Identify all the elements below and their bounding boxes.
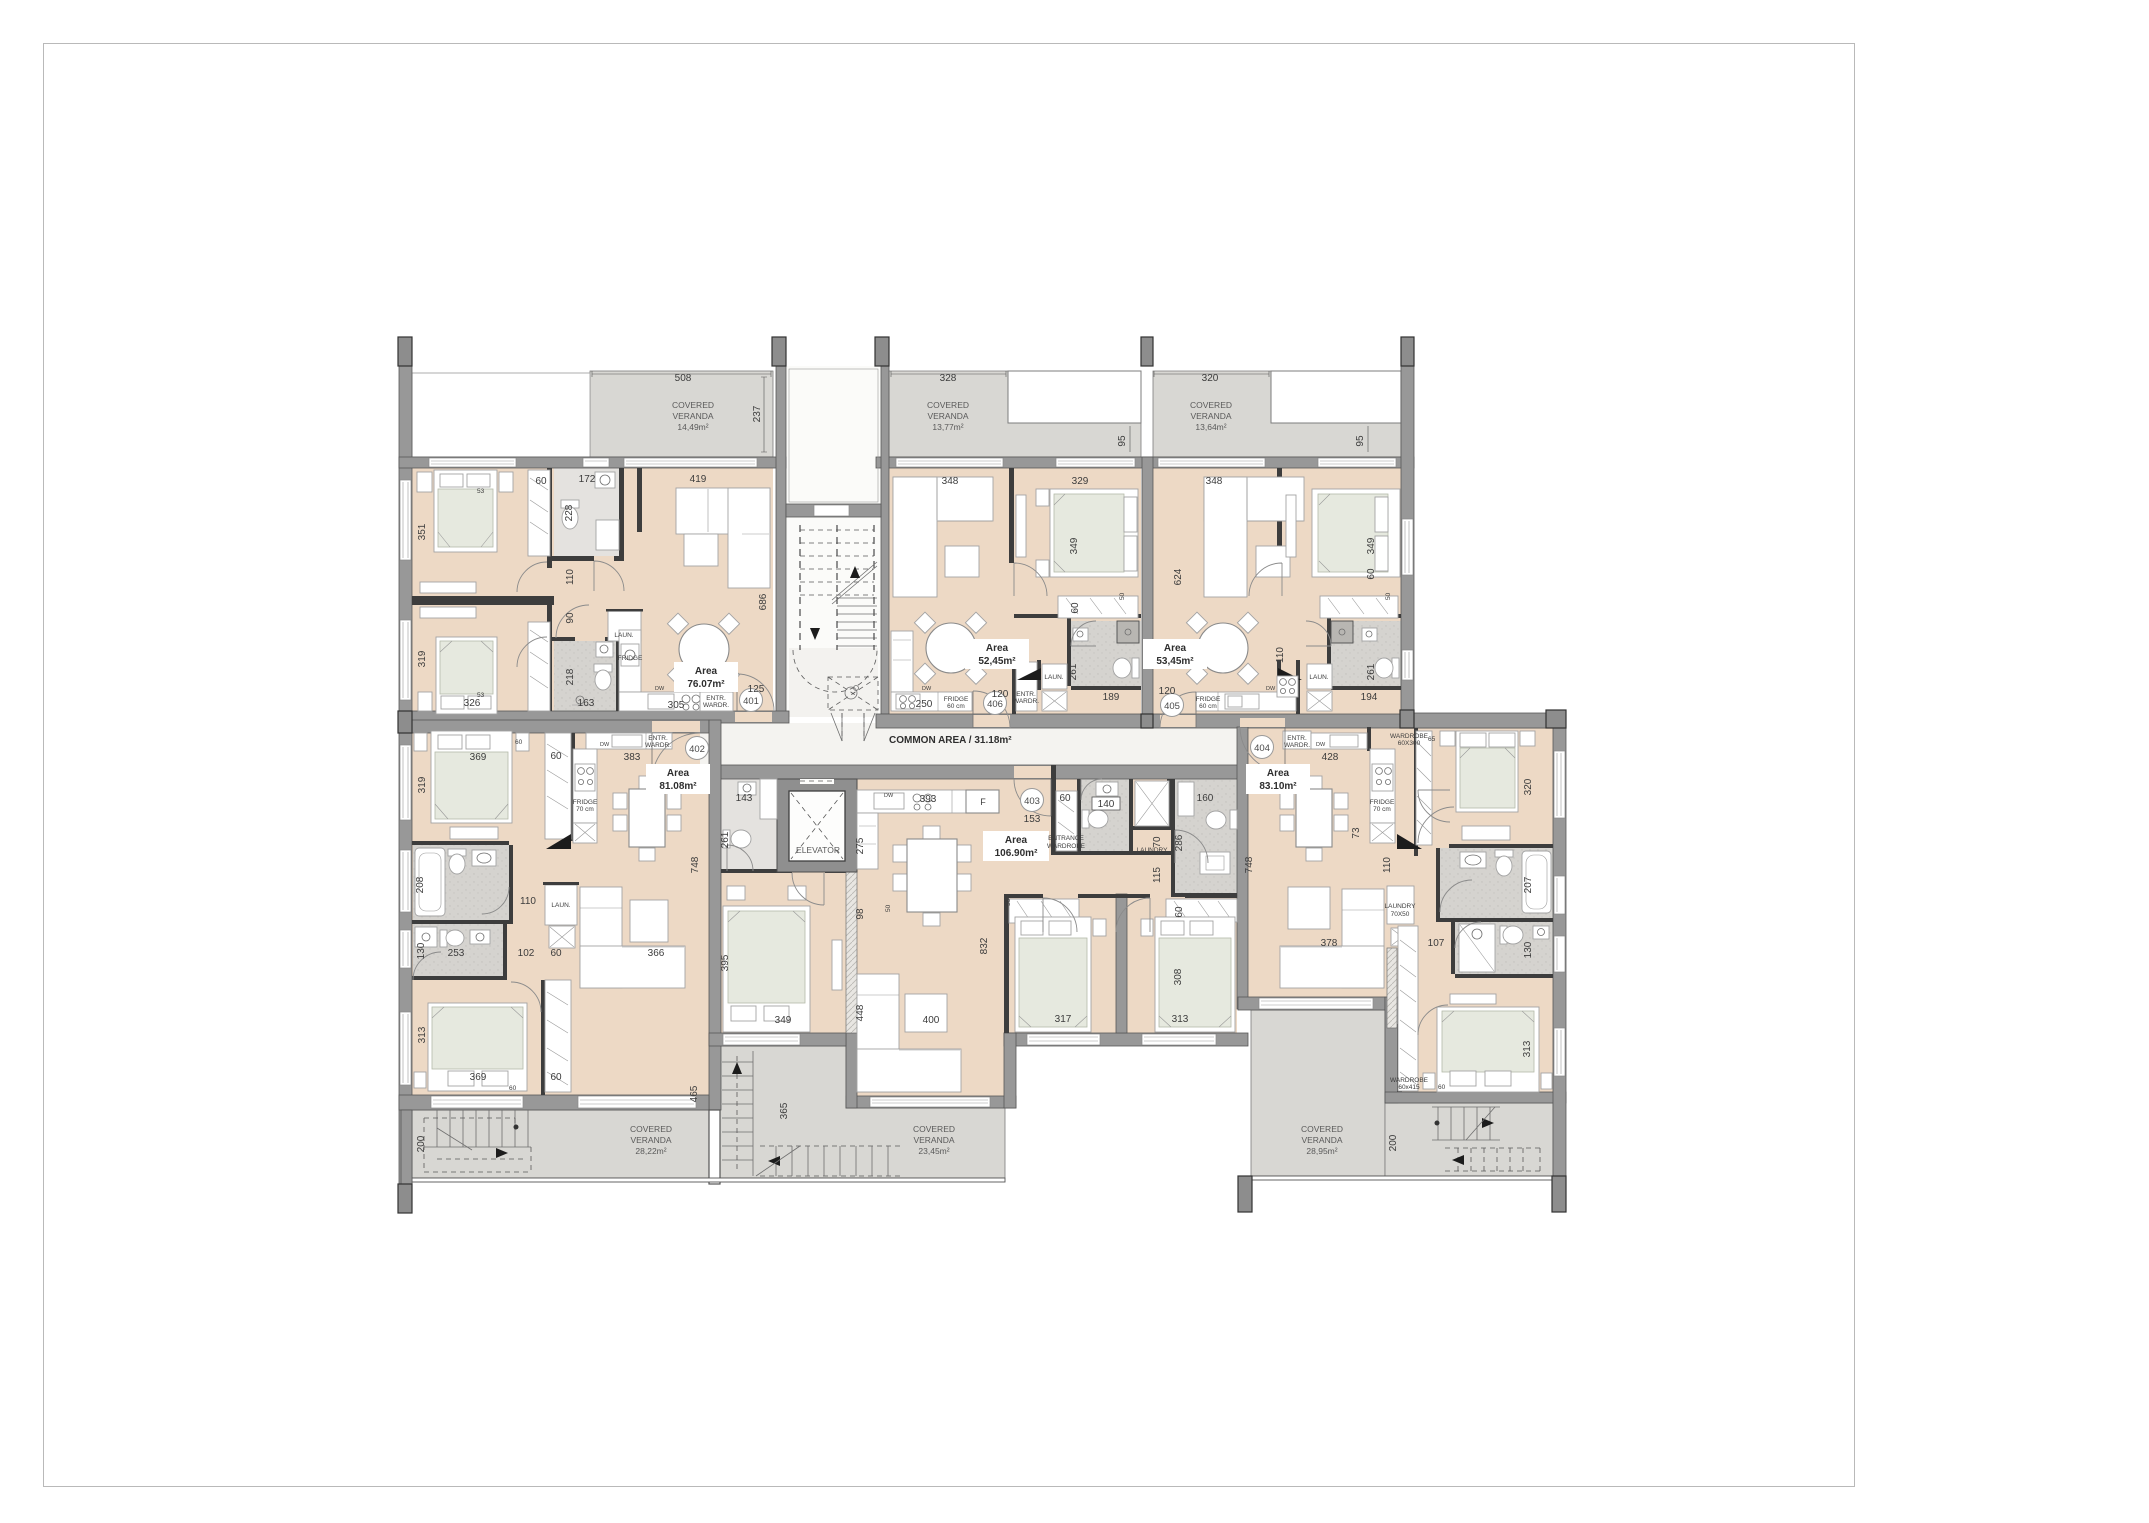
svg-text:95: 95 (1355, 435, 1366, 447)
svg-text:308: 308 (1173, 968, 1184, 985)
svg-text:60: 60 (535, 476, 547, 487)
svg-text:383: 383 (624, 752, 641, 763)
svg-text:50: 50 (885, 904, 892, 912)
svg-text:LAUN.: LAUN. (1044, 674, 1063, 681)
svg-text:95: 95 (1117, 435, 1128, 447)
svg-text:LAUN.: LAUN. (1309, 674, 1328, 681)
svg-text:WARDROBE: WARDROBE (1390, 733, 1429, 740)
svg-text:313: 313 (417, 1026, 428, 1043)
svg-text:218: 218 (565, 668, 576, 685)
svg-text:ENTR.: ENTR. (648, 735, 668, 742)
svg-text:LAUNDRY: LAUNDRY (1385, 903, 1417, 910)
svg-text:120: 120 (1159, 686, 1176, 697)
svg-text:60: 60 (550, 948, 562, 959)
svg-text:402: 402 (689, 744, 705, 755)
svg-text:401: 401 (743, 696, 759, 707)
svg-text:624: 624 (1173, 568, 1184, 585)
svg-text:50: 50 (1005, 898, 1012, 906)
svg-text:393: 393 (920, 794, 937, 805)
svg-text:14,49m²: 14,49m² (677, 422, 708, 432)
svg-text:COVERED: COVERED (630, 1124, 672, 1134)
svg-text:60x415: 60x415 (1398, 1084, 1420, 1091)
svg-text:320: 320 (1202, 373, 1219, 384)
svg-text:832: 832 (979, 937, 990, 954)
svg-text:60: 60 (1366, 568, 1377, 580)
svg-text:275: 275 (855, 837, 866, 854)
svg-text:70 cm: 70 cm (576, 806, 594, 813)
svg-text:DW: DW (1266, 686, 1276, 692)
svg-text:50: 50 (1119, 592, 1126, 600)
svg-text:400: 400 (923, 1015, 940, 1026)
svg-text:110: 110 (565, 569, 576, 585)
svg-text:60: 60 (550, 1072, 562, 1083)
svg-text:WARDR.: WARDR. (645, 742, 671, 749)
svg-text:250: 250 (916, 699, 933, 710)
svg-text:COVERED: COVERED (1190, 400, 1232, 410)
svg-text:70 cm: 70 cm (1373, 806, 1391, 813)
svg-text:Area: Area (1164, 643, 1187, 654)
svg-text:73: 73 (1351, 827, 1362, 839)
svg-text:WARDROBE: WARDROBE (1390, 1077, 1429, 1084)
svg-text:FRIDGE: FRIDGE (944, 696, 969, 703)
svg-text:60: 60 (1059, 793, 1071, 804)
svg-text:COMMON AREA / 31.18m²: COMMON AREA / 31.18m² (889, 735, 1012, 746)
svg-text:98: 98 (855, 908, 866, 920)
svg-text:83.10m²: 83.10m² (1259, 781, 1297, 792)
svg-text:50: 50 (1385, 592, 1392, 600)
svg-text:207: 207 (1523, 876, 1534, 893)
svg-text:ENTR.: ENTR. (706, 695, 726, 702)
svg-text:228: 228 (564, 504, 575, 521)
svg-text:Area: Area (695, 666, 718, 677)
svg-text:VERANDA: VERANDA (630, 1135, 671, 1145)
svg-text:COVERED: COVERED (672, 400, 714, 410)
svg-text:748: 748 (1244, 856, 1255, 873)
svg-text:143: 143 (736, 793, 753, 804)
svg-text:60 cm: 60 cm (1199, 703, 1217, 710)
svg-text:76.07m²: 76.07m² (687, 679, 725, 690)
svg-text:102: 102 (518, 948, 535, 959)
svg-text:110: 110 (1275, 647, 1286, 663)
svg-text:349: 349 (1366, 537, 1377, 554)
svg-text:FRIDGE: FRIDGE (1196, 696, 1221, 703)
svg-text:351: 351 (417, 523, 428, 540)
svg-text:ENTRANCE: ENTRANCE (1048, 835, 1084, 842)
svg-text:253: 253 (448, 948, 465, 959)
svg-text:369: 369 (470, 752, 487, 763)
svg-text:ENTR.: ENTR. (1016, 691, 1036, 698)
svg-text:53: 53 (477, 488, 485, 495)
svg-text:ENTR.: ENTR. (1287, 735, 1307, 742)
svg-text:52,45m²: 52,45m² (978, 656, 1016, 667)
svg-text:326: 326 (464, 698, 481, 709)
svg-text:208: 208 (415, 876, 426, 893)
svg-text:60: 60 (550, 751, 562, 762)
svg-text:Area: Area (667, 768, 690, 779)
svg-text:70: 70 (1152, 836, 1163, 848)
svg-text:153: 153 (1024, 814, 1041, 825)
svg-text:60: 60 (1438, 1084, 1446, 1091)
svg-text:28,22m²: 28,22m² (635, 1146, 666, 1156)
svg-text:13,77m²: 13,77m² (932, 422, 963, 432)
svg-text:VERANDA: VERANDA (1301, 1135, 1342, 1145)
svg-text:404: 404 (1254, 743, 1270, 754)
svg-text:23,45m²: 23,45m² (918, 1146, 949, 1156)
svg-text:313: 313 (1172, 1014, 1189, 1025)
svg-text:FRIDGE: FRIDGE (618, 655, 643, 662)
svg-text:53,45m²: 53,45m² (1156, 656, 1194, 667)
svg-text:Area: Area (1005, 835, 1028, 846)
svg-text:428: 428 (1322, 752, 1339, 763)
svg-text:110: 110 (1382, 857, 1393, 873)
svg-text:60X300: 60X300 (1398, 740, 1421, 747)
svg-text:VERANDA: VERANDA (672, 411, 713, 421)
svg-text:130: 130 (1523, 941, 1534, 958)
svg-text:237: 237 (752, 405, 763, 422)
svg-text:DW: DW (922, 686, 932, 692)
svg-text:WARDR.: WARDR. (1013, 698, 1039, 705)
svg-text:163: 163 (578, 698, 595, 709)
svg-text:369: 369 (470, 1072, 487, 1083)
svg-text:106.90m²: 106.90m² (995, 848, 1038, 859)
svg-text:FRIDGE: FRIDGE (573, 799, 598, 806)
svg-text:LAUN.: LAUN. (551, 902, 570, 909)
svg-text:419: 419 (690, 474, 707, 485)
svg-text:WARDR.: WARDR. (703, 702, 729, 709)
svg-text:403: 403 (1024, 796, 1040, 807)
svg-text:DW: DW (884, 793, 894, 799)
svg-text:Area: Area (1267, 768, 1290, 779)
svg-text:LAUNDRY: LAUNDRY (1137, 847, 1169, 854)
svg-text:VERANDA: VERANDA (913, 1135, 954, 1145)
svg-text:748: 748 (690, 856, 701, 873)
svg-text:28,95m²: 28,95m² (1306, 1146, 1337, 1156)
svg-text:WARDR.: WARDR. (1284, 742, 1310, 749)
svg-text:286: 286 (1174, 834, 1185, 851)
svg-text:328: 328 (940, 373, 957, 384)
svg-text:194: 194 (1361, 692, 1378, 703)
svg-text:317: 317 (1055, 1014, 1072, 1025)
svg-text:140: 140 (1098, 799, 1115, 810)
svg-text:329: 329 (1072, 476, 1089, 487)
svg-text:365: 365 (779, 1102, 790, 1119)
svg-text:349: 349 (1069, 537, 1080, 554)
svg-text:DW: DW (600, 742, 610, 748)
svg-text:LAUN.: LAUN. (614, 632, 633, 639)
svg-text:COVERED: COVERED (927, 400, 969, 410)
svg-text:172: 172 (579, 474, 596, 485)
svg-text:90: 90 (565, 612, 576, 624)
svg-text:VERANDA: VERANDA (1190, 411, 1231, 421)
svg-text:395: 395 (720, 954, 731, 971)
svg-text:349: 349 (775, 1015, 792, 1026)
svg-text:53: 53 (477, 692, 485, 699)
svg-text:COVERED: COVERED (1301, 1124, 1343, 1134)
svg-text:348: 348 (942, 476, 959, 487)
svg-text:200: 200 (1388, 1134, 1399, 1151)
svg-text:508: 508 (675, 373, 692, 384)
svg-text:125: 125 (748, 684, 765, 695)
svg-text:200: 200 (416, 1135, 427, 1152)
svg-text:448: 448 (855, 1004, 866, 1021)
svg-text:COVERED: COVERED (913, 1124, 955, 1134)
svg-text:60: 60 (1174, 906, 1185, 918)
svg-text:120: 120 (992, 689, 1009, 700)
svg-text:F: F (980, 797, 986, 807)
svg-text:VERANDA: VERANDA (927, 411, 968, 421)
svg-text:160: 160 (1197, 793, 1214, 804)
svg-text:261: 261 (1366, 663, 1377, 680)
svg-text:60: 60 (509, 1085, 517, 1092)
svg-text:60: 60 (515, 739, 523, 746)
svg-text:378: 378 (1321, 938, 1338, 949)
svg-text:65: 65 (1428, 736, 1436, 743)
svg-text:319: 319 (417, 776, 428, 793)
svg-text:686: 686 (758, 593, 769, 610)
svg-text:FRIDGE: FRIDGE (1370, 799, 1395, 806)
svg-text:319: 319 (417, 650, 428, 667)
svg-text:406: 406 (987, 699, 1003, 710)
svg-text:405: 405 (1164, 701, 1180, 712)
svg-text:366: 366 (648, 948, 665, 959)
svg-text:189: 189 (1103, 692, 1120, 703)
svg-text:110: 110 (520, 896, 536, 907)
svg-text:ELEVATOR: ELEVATOR (796, 845, 840, 855)
svg-text:305: 305 (668, 700, 685, 711)
svg-text:465: 465 (689, 1085, 700, 1102)
svg-text:261: 261 (720, 831, 731, 848)
svg-text:Area: Area (986, 643, 1009, 654)
svg-text:WARDROBE: WARDROBE (1047, 843, 1086, 850)
svg-text:130: 130 (416, 942, 427, 959)
svg-text:348: 348 (1206, 476, 1223, 487)
svg-text:DW: DW (1316, 742, 1326, 748)
svg-text:81.08m²: 81.08m² (659, 781, 697, 792)
svg-text:115: 115 (1152, 867, 1163, 883)
svg-text:107: 107 (1428, 938, 1445, 949)
svg-text:320: 320 (1523, 778, 1534, 795)
svg-text:60 cm: 60 cm (947, 703, 965, 710)
svg-text:60: 60 (1070, 602, 1081, 614)
svg-text:70X50: 70X50 (1391, 911, 1410, 918)
svg-text:DW: DW (655, 686, 665, 692)
svg-text:261: 261 (1068, 663, 1079, 680)
svg-text:313: 313 (1522, 1040, 1533, 1057)
svg-text:13,64m²: 13,64m² (1195, 422, 1226, 432)
